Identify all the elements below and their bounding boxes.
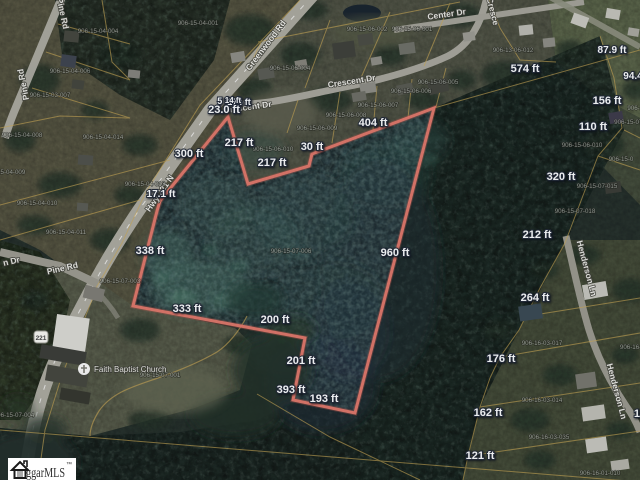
svg-text:™: ™ [66,461,72,468]
svg-text:ggarMLS: ggarMLS [26,466,65,480]
